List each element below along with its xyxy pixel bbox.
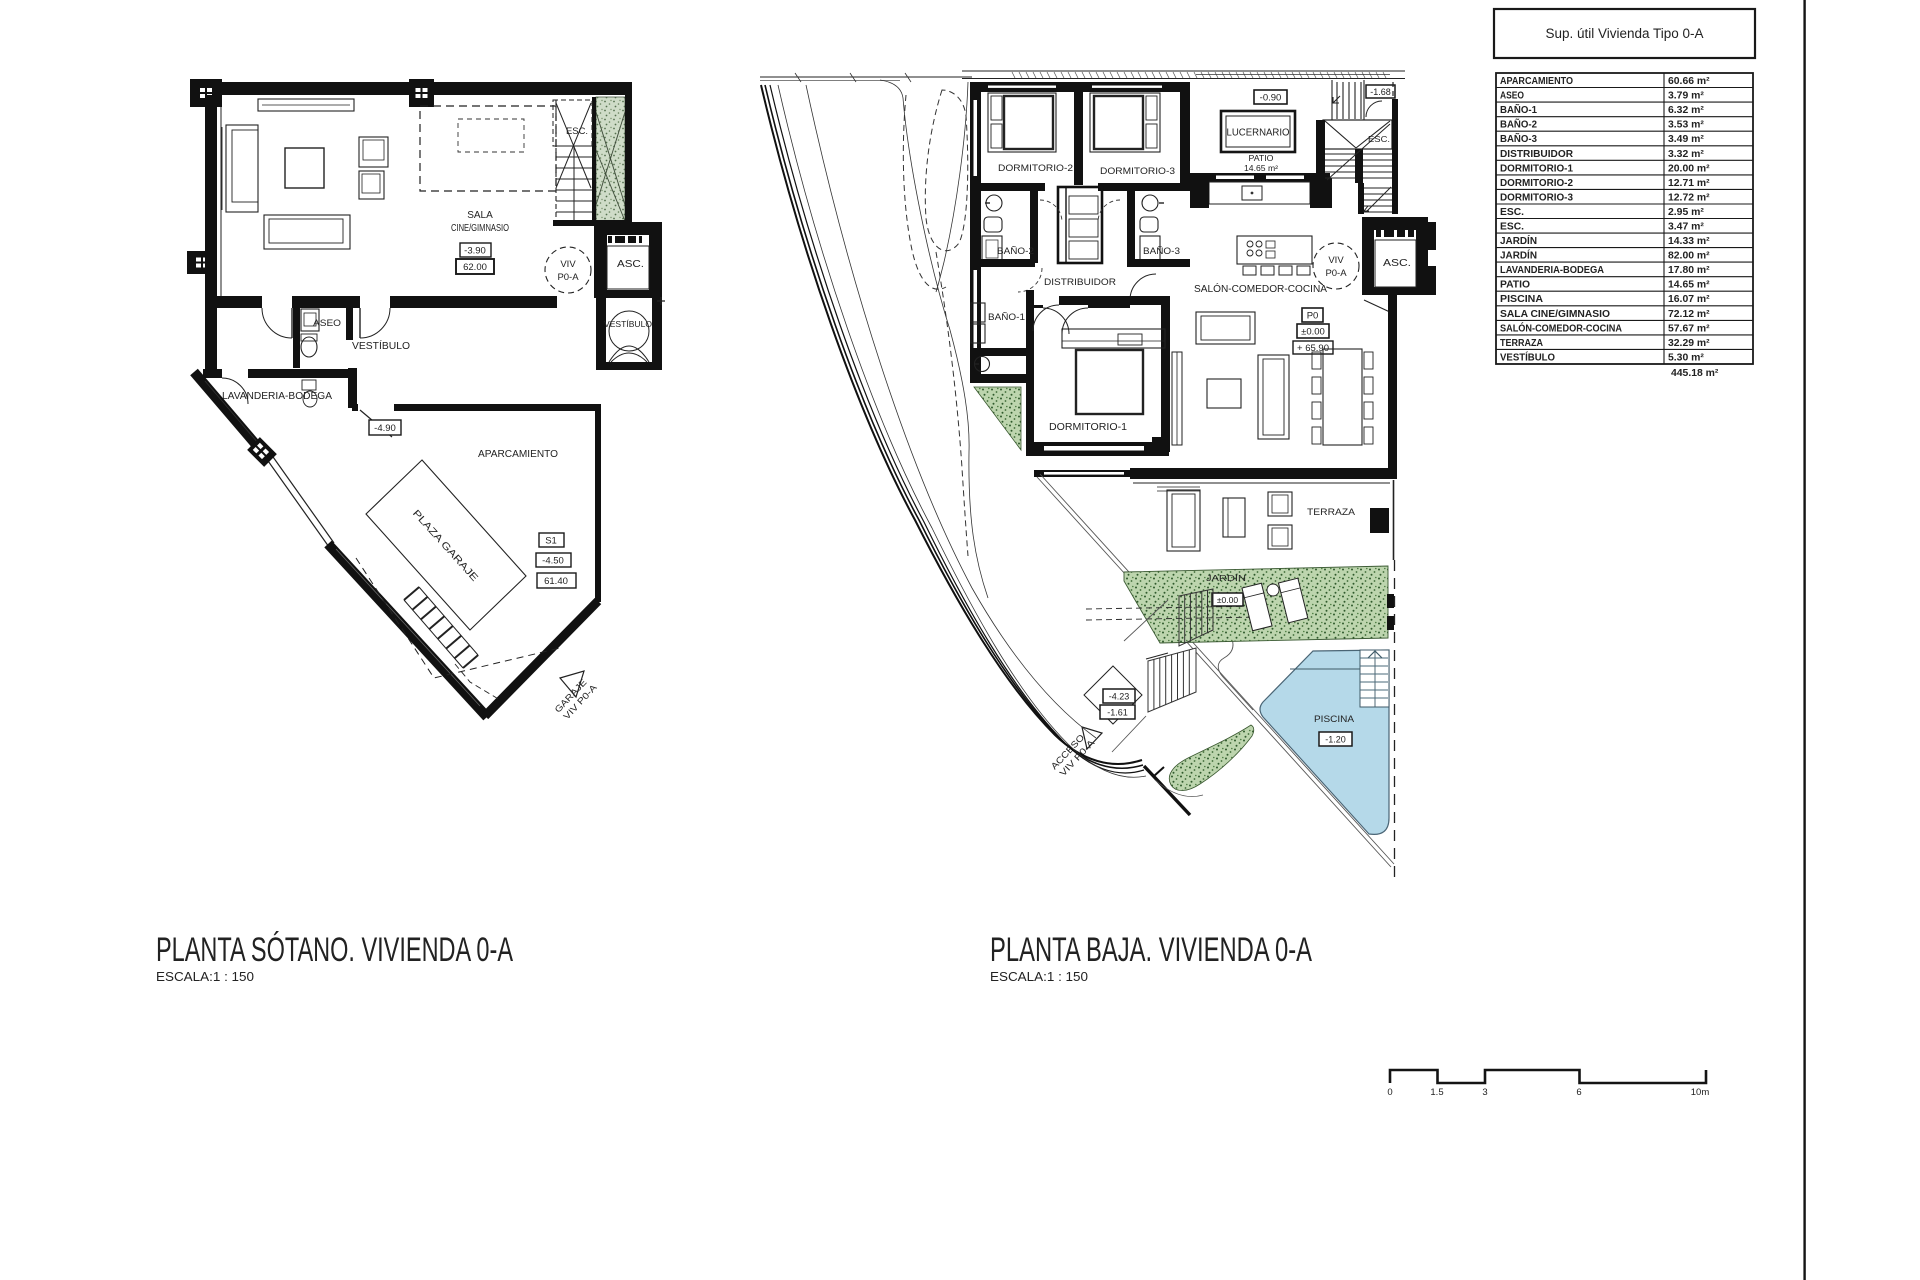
svg-text:LAVANDERIA-BODEGA: LAVANDERIA-BODEGA: [222, 391, 332, 402]
svg-text:APARCAMIENTO: APARCAMIENTO: [1500, 76, 1573, 87]
svg-text:-1.68: -1.68: [1370, 87, 1391, 97]
svg-text:ESC.: ESC.: [1500, 207, 1524, 218]
svg-text:3.49 m²: 3.49 m²: [1668, 134, 1704, 145]
svg-text:ASEO: ASEO: [313, 318, 341, 328]
svg-text:S1: S1: [545, 536, 557, 547]
svg-text:62.00: 62.00: [463, 262, 487, 273]
svg-text:-1.20: -1.20: [1325, 735, 1346, 745]
svg-text:5.30 m²: 5.30 m²: [1668, 352, 1704, 363]
svg-text:-4.23: -4.23: [1109, 692, 1130, 702]
svg-text:6.32 m²: 6.32 m²: [1668, 105, 1704, 116]
svg-text:BAÑO-3: BAÑO-3: [1143, 246, 1180, 256]
svg-text:ESCALA:1 : 150: ESCALA:1 : 150: [990, 970, 1088, 984]
svg-text:P0-A: P0-A: [557, 272, 579, 283]
svg-text:DORMITORIO-2: DORMITORIO-2: [998, 163, 1073, 174]
svg-text:JARDÍN: JARDÍN: [1500, 249, 1537, 262]
svg-text:3: 3: [1482, 1087, 1487, 1098]
svg-text:ESCALA:1 : 150: ESCALA:1 : 150: [156, 970, 254, 984]
svg-text:VIV: VIV: [1328, 255, 1344, 266]
svg-text:PLANTA SÓTANO. VIVIENDA 0-A: PLANTA SÓTANO. VIVIENDA 0-A: [156, 931, 513, 969]
svg-text:57.67 m²: 57.67 m²: [1668, 323, 1710, 334]
svg-text:LAVANDERIA-BODEGA: LAVANDERIA-BODEGA: [1500, 265, 1604, 276]
svg-text:PATIO: PATIO: [1500, 280, 1530, 291]
svg-text:±0.00: ±0.00: [1217, 595, 1238, 605]
svg-text:17.80 m²: 17.80 m²: [1668, 265, 1710, 276]
svg-text:60.66 m²: 60.66 m²: [1668, 76, 1710, 87]
svg-text:JARDÍN: JARDÍN: [1206, 574, 1246, 583]
svg-text:±0.00: ±0.00: [1301, 327, 1325, 338]
svg-text:VESTÍBULO: VESTÍBULO: [352, 339, 410, 352]
svg-text:ESC.: ESC.: [566, 126, 588, 136]
svg-text:BAÑO-2: BAÑO-2: [997, 246, 1034, 256]
svg-text:14.33 m²: 14.33 m²: [1668, 236, 1710, 247]
svg-text:TERRAZA: TERRAZA: [1307, 507, 1355, 517]
svg-text:DISTRIBUIDOR: DISTRIBUIDOR: [1044, 277, 1116, 288]
svg-text:DORMITORIO-1: DORMITORIO-1: [1500, 163, 1573, 174]
svg-text:ASEO: ASEO: [1500, 91, 1524, 102]
svg-text:PISCINA: PISCINA: [1500, 294, 1543, 305]
svg-text:-4.50: -4.50: [542, 556, 564, 567]
svg-text:DORMITORIO-3: DORMITORIO-3: [1500, 192, 1573, 203]
svg-text:3.47 m²: 3.47 m²: [1668, 222, 1704, 233]
svg-text:2.95 m²: 2.95 m²: [1668, 207, 1704, 218]
svg-text:-1.61: -1.61: [1107, 708, 1128, 718]
svg-text:Sup. útil Vivienda Tipo 0-A: Sup. útil Vivienda Tipo 0-A: [1546, 26, 1704, 41]
svg-text:82.00 m²: 82.00 m²: [1668, 251, 1710, 262]
svg-text:DORMITORIO-2: DORMITORIO-2: [1500, 178, 1573, 189]
svg-text:BAÑO-1: BAÑO-1: [988, 312, 1025, 322]
svg-text:CINE/GIMNASIO: CINE/GIMNASIO: [451, 223, 509, 234]
svg-text:DORMITORIO-1: DORMITORIO-1: [1049, 422, 1127, 433]
svg-text:6: 6: [1576, 1087, 1581, 1098]
svg-text:61.40: 61.40: [544, 576, 568, 587]
svg-text:PATIO: PATIO: [1249, 154, 1274, 163]
svg-text:1.5: 1.5: [1430, 1087, 1443, 1098]
svg-text:10m: 10m: [1691, 1087, 1710, 1098]
svg-text:16.07 m²: 16.07 m²: [1668, 294, 1710, 305]
svg-text:VIV: VIV: [560, 259, 576, 270]
svg-text:3.32 m²: 3.32 m²: [1668, 149, 1704, 160]
svg-text:ESC.: ESC.: [1368, 134, 1390, 144]
svg-text:DORMITORIO-3: DORMITORIO-3: [1100, 166, 1175, 177]
svg-text:LUCERNARIO: LUCERNARIO: [1227, 128, 1290, 139]
svg-text:14.65 m²: 14.65 m²: [1668, 280, 1710, 291]
svg-text:JARDÍN: JARDÍN: [1500, 234, 1537, 247]
svg-text:ASC.: ASC.: [617, 259, 644, 270]
svg-text:ESC.: ESC.: [1500, 222, 1524, 233]
svg-text:0: 0: [1387, 1087, 1392, 1098]
svg-text:BAÑO-1: BAÑO-1: [1500, 103, 1537, 116]
svg-text:3.79 m²: 3.79 m²: [1668, 91, 1704, 102]
svg-text:20.00 m²: 20.00 m²: [1668, 163, 1710, 174]
svg-text:445.18 m²: 445.18 m²: [1671, 368, 1719, 379]
svg-text:12.71 m²: 12.71 m²: [1668, 178, 1710, 189]
svg-text:DISTRIBUIDOR: DISTRIBUIDOR: [1500, 149, 1573, 160]
svg-text:3.53 m²: 3.53 m²: [1668, 120, 1704, 131]
svg-text:14.65 m²: 14.65 m²: [1244, 164, 1278, 173]
svg-text:SALÓN-COMEDOR-COCINA: SALÓN-COMEDOR-COCINA: [1194, 282, 1327, 295]
svg-text:TERRAZA: TERRAZA: [1500, 338, 1543, 349]
svg-text:SALÓN-COMEDOR-COCINA: SALÓN-COMEDOR-COCINA: [1500, 321, 1622, 334]
svg-text:BAÑO-2: BAÑO-2: [1500, 118, 1537, 131]
svg-text:PLANTA BAJA. VIVIENDA 0-A: PLANTA BAJA. VIVIENDA 0-A: [990, 931, 1312, 969]
svg-text:VESTÍBULO: VESTÍBULO: [604, 319, 652, 329]
svg-text:PISCINA: PISCINA: [1314, 714, 1354, 724]
svg-text:-0.90: -0.90: [1260, 93, 1282, 104]
svg-text:12.72 m²: 12.72 m²: [1668, 192, 1710, 203]
svg-text:BAÑO-3: BAÑO-3: [1500, 132, 1537, 145]
svg-text:VESTÍBULO: VESTÍBULO: [1500, 350, 1555, 363]
svg-text:APARCAMIENTO: APARCAMIENTO: [478, 449, 558, 460]
svg-text:SALA: SALA: [467, 210, 493, 221]
svg-text:P0: P0: [1307, 311, 1319, 322]
svg-text:ASC.: ASC.: [1383, 258, 1411, 269]
svg-text:-3.90: -3.90: [464, 246, 486, 257]
svg-text:32.29 m²: 32.29 m²: [1668, 338, 1710, 349]
svg-text:SALA CINE/GIMNASIO: SALA CINE/GIMNASIO: [1500, 309, 1610, 320]
svg-text:72.12 m²: 72.12 m²: [1668, 309, 1710, 320]
svg-text:-4.90: -4.90: [374, 423, 396, 434]
svg-text:P0-A: P0-A: [1325, 268, 1347, 279]
